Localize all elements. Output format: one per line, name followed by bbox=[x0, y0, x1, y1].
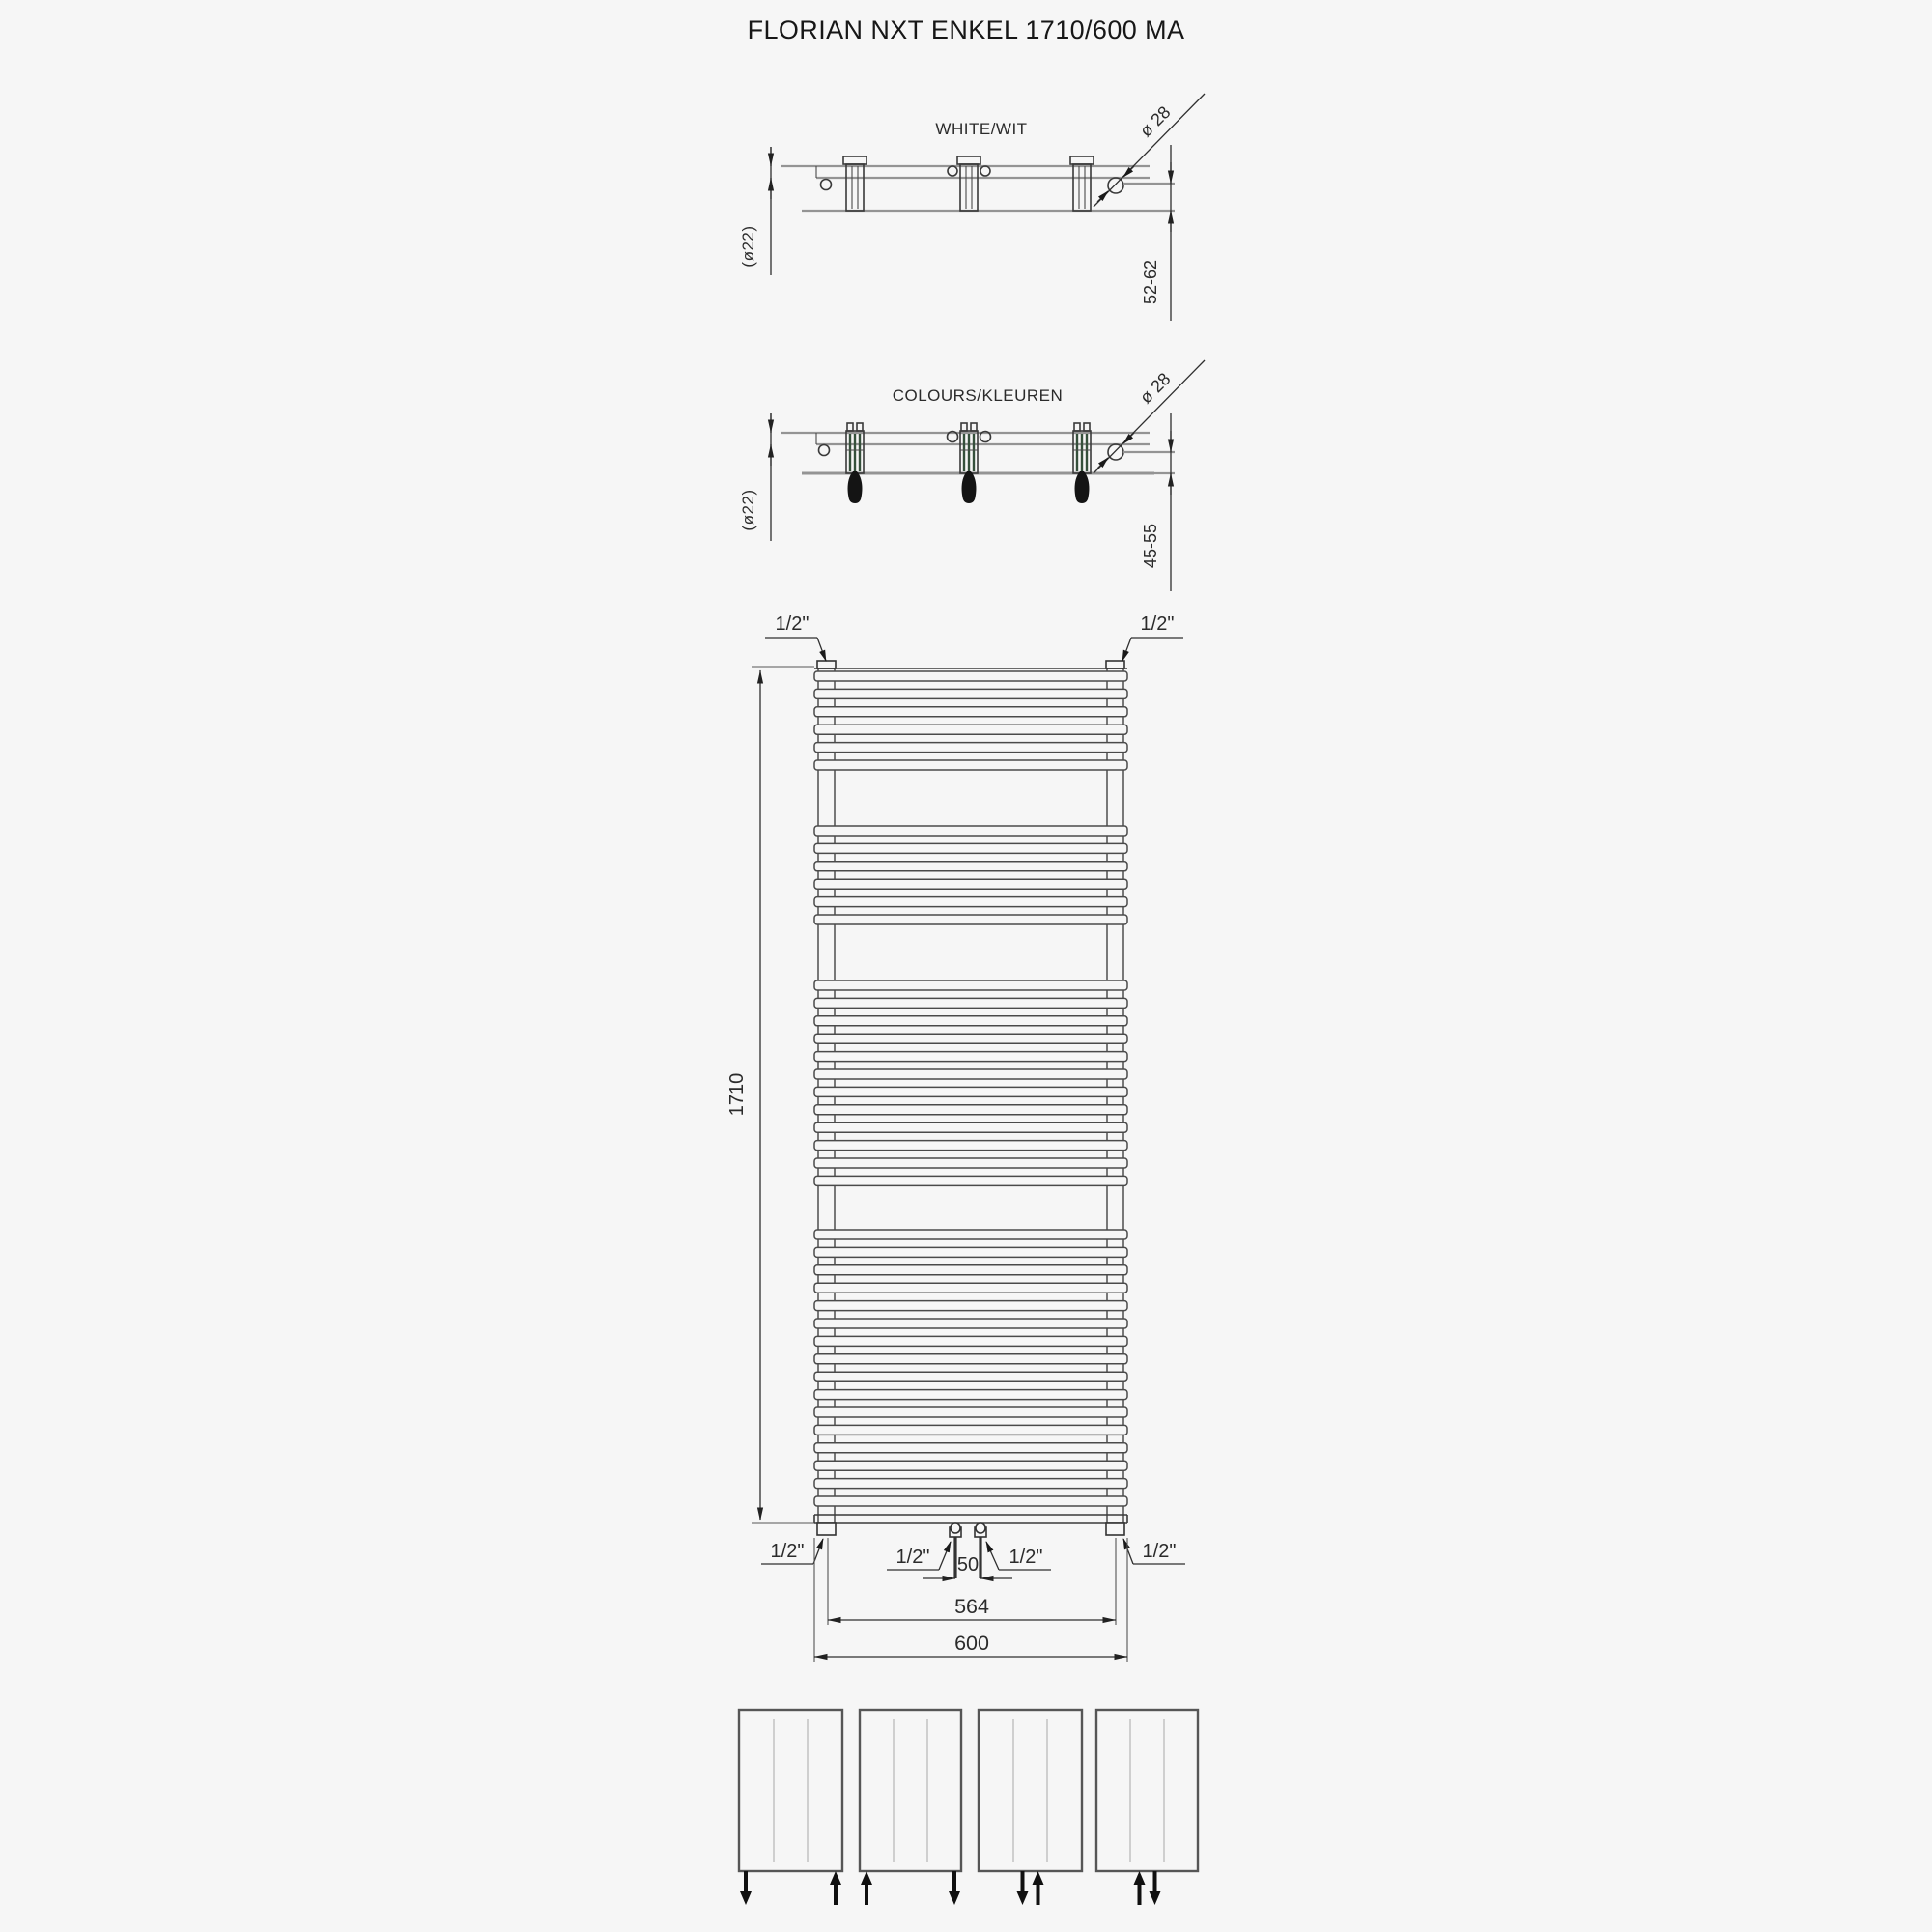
radiator-rung bbox=[814, 1496, 1127, 1506]
radiator-rung bbox=[814, 1354, 1127, 1364]
flow-arrowhead-up bbox=[1134, 1871, 1146, 1885]
svg-text:1/2": 1/2" bbox=[776, 613, 810, 635]
svg-text:1/2": 1/2" bbox=[1009, 1547, 1043, 1568]
radiator-rung bbox=[814, 1247, 1127, 1257]
bracket-knob-icon bbox=[1108, 444, 1123, 460]
radiator-rung bbox=[814, 1301, 1127, 1311]
radiator-rung bbox=[814, 743, 1127, 753]
radiator-rung bbox=[814, 1122, 1127, 1132]
top-left-connection-stub bbox=[817, 661, 836, 668]
radiator-rung bbox=[814, 1390, 1127, 1400]
side-view-colours: COLOURS/KLEUREN (ø22) ø 28 bbox=[739, 360, 1205, 591]
connection-option-3 bbox=[979, 1710, 1082, 1905]
thread-label-top-right: 1/2" bbox=[1122, 613, 1183, 661]
radiator-rung bbox=[814, 862, 1127, 871]
flow-arrowhead-up bbox=[830, 1871, 841, 1885]
center-distance-label: 50 bbox=[957, 1554, 979, 1576]
flow-arrowhead-down bbox=[1017, 1891, 1029, 1905]
dimension-tube-diameter-white: (ø22) bbox=[739, 147, 771, 275]
radiator-rung bbox=[814, 980, 1127, 990]
flow-arrowhead-down bbox=[1150, 1891, 1161, 1905]
front-view: 1710 1/2" 1/2" 1/2" 1/2" bbox=[726, 613, 1185, 1662]
radiator-rung bbox=[814, 915, 1127, 924]
radiator-rung bbox=[814, 760, 1127, 770]
dimension-height: 1710 bbox=[726, 667, 814, 1523]
thread-label-bottom-left: 1/2" bbox=[761, 1539, 823, 1564]
flow-arrowhead-down bbox=[740, 1891, 752, 1905]
connection-option-4 bbox=[1096, 1710, 1198, 1905]
radiator-rung bbox=[814, 1016, 1127, 1026]
radiator-rung bbox=[814, 671, 1127, 681]
bracket-diameter-label: ø 28 bbox=[1136, 102, 1175, 141]
radiator-rung bbox=[814, 689, 1127, 698]
radiator-rung bbox=[814, 1461, 1127, 1470]
flow-arrowhead-down bbox=[949, 1891, 960, 1905]
radiator-rung bbox=[814, 1141, 1127, 1151]
wall-distance-label: 52-62 bbox=[1141, 260, 1160, 304]
radiator-rung bbox=[814, 826, 1127, 836]
radiator-rung bbox=[814, 1158, 1127, 1168]
bracket-knob-icon bbox=[1108, 178, 1123, 193]
svg-text:1/2": 1/2" bbox=[771, 1541, 805, 1562]
dimension-wall-distance-colours: 45-55 bbox=[1123, 413, 1175, 591]
height-label: 1710 bbox=[726, 1073, 748, 1117]
tube-diameter-label: (ø22) bbox=[739, 225, 757, 267]
radiator-rung bbox=[814, 1176, 1127, 1185]
side-view-white: WHITE/WIT (ø22) bbox=[739, 94, 1205, 321]
valve-connection-icon bbox=[976, 1523, 985, 1533]
dimension-center-distance: 50 bbox=[923, 1554, 1012, 1578]
radiator-rung bbox=[814, 724, 1127, 734]
connection-option-1 bbox=[739, 1710, 842, 1905]
radiator-rung bbox=[814, 1283, 1127, 1293]
valve-connection-icon bbox=[951, 1523, 960, 1533]
thread-label-bottom-center-right: 1/2" bbox=[986, 1542, 1051, 1570]
connection-options bbox=[739, 1710, 1198, 1905]
flow-arrowhead-up bbox=[861, 1871, 872, 1885]
bottom-left-connection-stub bbox=[817, 1523, 836, 1535]
radiator-rung bbox=[814, 1425, 1127, 1435]
radiator-rung bbox=[814, 1052, 1127, 1062]
radiator-rung bbox=[814, 1336, 1127, 1346]
view-label-colours: COLOURS/KLEUREN bbox=[893, 386, 1064, 405]
radiator-rung bbox=[814, 1372, 1127, 1381]
radiator-rung bbox=[814, 1087, 1127, 1096]
svg-text:1/2": 1/2" bbox=[1141, 613, 1175, 635]
flow-arrowhead-up bbox=[1033, 1871, 1044, 1885]
svg-text:1/2": 1/2" bbox=[896, 1547, 930, 1568]
view-label-white: WHITE/WIT bbox=[935, 120, 1027, 138]
radiator-rung bbox=[814, 1443, 1127, 1453]
radiator-rung bbox=[814, 1034, 1127, 1043]
tube-diameter-label: (ø22) bbox=[739, 489, 757, 530]
dimension-connection-width: 564 bbox=[828, 1538, 1116, 1625]
radiator-rung bbox=[814, 1265, 1127, 1275]
radiator-rung bbox=[814, 1069, 1127, 1079]
technical-drawing-page: FLORIAN NXT ENKEL 1710/600 MA bbox=[0, 0, 1932, 1932]
thread-label-bottom-center-left: 1/2" bbox=[887, 1542, 951, 1570]
radiator-rung bbox=[814, 1230, 1127, 1239]
dimension-tube-diameter-colours: (ø22) bbox=[739, 413, 771, 541]
radiator-rung bbox=[814, 879, 1127, 889]
bracket-screw-icon bbox=[980, 166, 990, 176]
radiator-rung bbox=[814, 998, 1127, 1008]
connection-option-2 bbox=[860, 1710, 961, 1905]
bracket-diameter-label: ø 28 bbox=[1136, 369, 1175, 408]
radiator-rungs bbox=[814, 671, 1127, 1506]
thread-label-top-left: 1/2" bbox=[765, 613, 826, 661]
bracket-screw-icon bbox=[948, 166, 957, 176]
bottom-right-connection-stub bbox=[1106, 1523, 1124, 1535]
svg-text:1/2": 1/2" bbox=[1143, 1541, 1177, 1562]
overall-width-label: 600 bbox=[954, 1632, 989, 1655]
dimension-bracket-knob-white: ø 28 bbox=[1094, 94, 1205, 207]
thread-label-bottom-right: 1/2" bbox=[1123, 1539, 1185, 1564]
air-vent-icon bbox=[819, 445, 830, 456]
air-vent-icon bbox=[821, 180, 832, 190]
technical-drawing: WHITE/WIT (ø22) bbox=[0, 0, 1932, 1932]
radiator-rung bbox=[814, 1479, 1127, 1489]
top-right-connection-stub bbox=[1106, 661, 1124, 668]
radiator-rung bbox=[814, 843, 1127, 853]
dimension-bracket-knob-colours: ø 28 bbox=[1094, 360, 1205, 473]
wall-distance-label: 45-55 bbox=[1141, 524, 1160, 568]
radiator-rung bbox=[814, 1407, 1127, 1417]
connection-width-label: 564 bbox=[954, 1595, 989, 1618]
radiator-rung bbox=[814, 1105, 1127, 1115]
radiator-rung bbox=[814, 897, 1127, 907]
dimension-wall-distance-white: 52-62 bbox=[1123, 145, 1175, 321]
radiator-rung bbox=[814, 1319, 1127, 1328]
radiator-rung bbox=[814, 707, 1127, 717]
